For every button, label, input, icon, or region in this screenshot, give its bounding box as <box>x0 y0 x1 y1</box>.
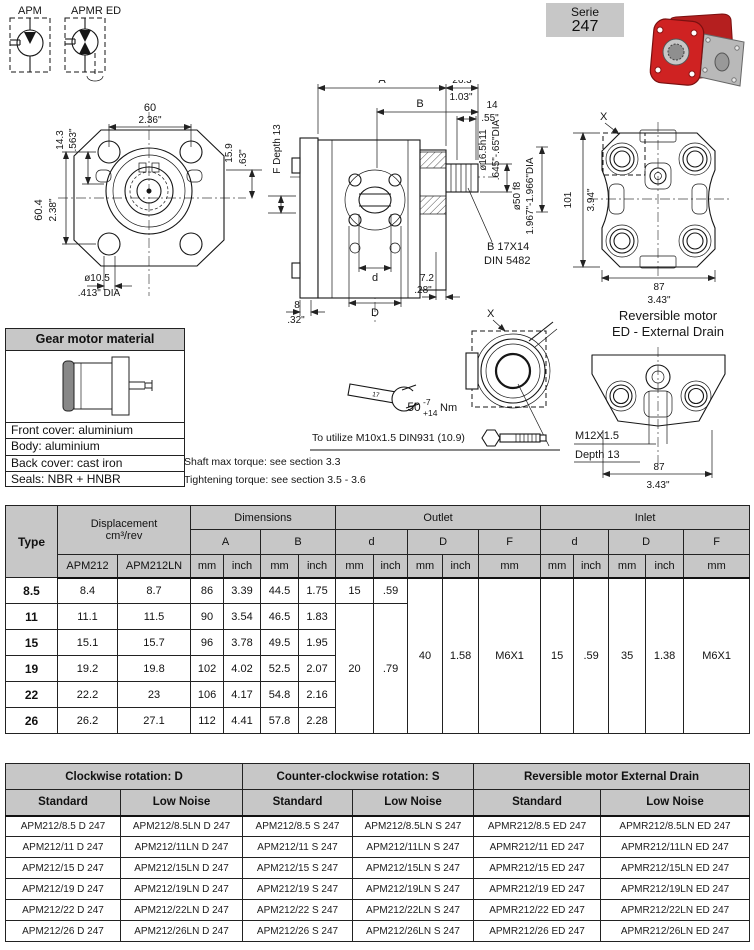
spec-cell: 90 <box>191 604 224 630</box>
bolt-icon <box>482 430 546 446</box>
group-counter-clockwise: Counter-clockwise rotation: S <box>243 764 474 790</box>
apmr-symbol-label: APMR ED <box>71 5 121 17</box>
table-row: APM212/22 D 247 APM212/22LN D 247 APM212… <box>6 900 750 921</box>
dim-plate-mm: 8 <box>294 300 300 311</box>
spec-cell: 26.2 <box>58 708 118 734</box>
col-apm212ln: APM212LN <box>118 555 191 578</box>
dim-key-mm: 15.9 <box>224 143 235 163</box>
col-b: B <box>261 530 336 555</box>
spec-cell: 22.2 <box>58 682 118 708</box>
col-inlet-F: F <box>684 530 750 555</box>
order-code-cell: APM212/15 D 247 <box>6 858 121 879</box>
order-code-cell: APM212/8.5 D 247 <box>6 816 121 837</box>
spec-cell: 11.1 <box>58 604 118 630</box>
dim-a-label: A <box>378 80 386 86</box>
spec-cell: 3.54 <box>224 604 261 630</box>
tightening-torque-note: Tightening torque: see section 3.5 - 3.6 <box>184 474 366 486</box>
col-dimensions: Dimensions <box>191 506 336 530</box>
ed-depth-label: Depth 13 <box>575 449 620 461</box>
order-code-cell: APMR212/19LN ED 247 <box>601 879 750 900</box>
unit-header: inch <box>299 555 336 578</box>
unit-header: inch <box>574 555 609 578</box>
order-code-cell: APMR212/11LN ED 247 <box>601 837 750 858</box>
table-row: APM212/8.5 D 247 APM212/8.5LN D 247 APM2… <box>6 816 750 837</box>
order-code-cell: APM212/22 D 247 <box>6 900 121 921</box>
unit-header: mm <box>261 555 299 578</box>
dim-ed-w-inch: 3.43" <box>646 480 669 491</box>
back-view: X 101 3.94" 87 3.43" Reversible motor ED… <box>563 111 730 339</box>
order-code-cell: APM212/26LN S 247 <box>353 921 474 942</box>
unit-header: mm <box>479 555 541 578</box>
unit-header: mm <box>684 555 750 578</box>
spec-cell: 3.39 <box>224 578 261 604</box>
spec-cell: 4.02 <box>224 656 261 682</box>
spec-cell: 96 <box>191 630 224 656</box>
dim-bv-w-inch: 3.43" <box>647 295 670 306</box>
spec-cell: 35 <box>609 578 646 734</box>
dim-width-inch: 2.36" <box>138 115 161 126</box>
order-code-cell: APMR212/26 ED 247 <box>474 921 601 942</box>
order-code-cell: APMR212/26LN ED 247 <box>601 921 750 942</box>
spec-cell: 2.16 <box>299 682 336 708</box>
order-code-cell: APM212/8.5LN D 247 <box>121 816 243 837</box>
spec-cell: 19.2 <box>58 656 118 682</box>
dim-bv-h-inch: 3.94" <box>586 188 597 211</box>
dim-b-label: B <box>416 98 423 110</box>
order-code-cell: APM212/11LN S 247 <box>353 837 474 858</box>
detail-x-label: X <box>487 308 495 320</box>
dim-key-inch: .63" <box>238 149 249 167</box>
material-row: Seals: NBR + HNBR <box>6 471 184 487</box>
spec-cell: M6X1 <box>479 578 541 734</box>
dim-hole-mm: ø10.5 <box>84 273 110 284</box>
order-code-cell: APM212/8.5 S 247 <box>243 816 353 837</box>
spec-cell: 46.5 <box>261 604 299 630</box>
shaft-torque-note: Shaft max torque: see section 3.3 <box>184 456 341 468</box>
dim-bv-w-mm: 87 <box>653 282 665 293</box>
displacement-unit: cm³/rev <box>58 530 190 542</box>
side-view: A 26.3 1.03" B 14 .55" ø16.5h11 .645"-.6… <box>286 80 548 326</box>
order-code-cell: APM212/11LN D 247 <box>121 837 243 858</box>
spec-cell: 112 <box>191 708 224 734</box>
spec-cell: 1.58 <box>443 578 479 734</box>
dim-d-big: D <box>371 307 379 319</box>
order-code-cell: APMR212/11 ED 247 <box>474 837 601 858</box>
dim-plate-inch: .32" <box>287 315 305 326</box>
spec-cell-type: 19 <box>6 656 58 682</box>
col-outlet-D: D <box>408 530 479 555</box>
ed-thread-label: M12X1.5 <box>575 430 619 442</box>
spec-cell-type: 15 <box>6 630 58 656</box>
spec-cell: 1.75 <box>299 578 336 604</box>
spec-cell-type: 26 <box>6 708 58 734</box>
order-code-cell: APM212/11 S 247 <box>243 837 353 858</box>
spec-cell: 57.8 <box>261 708 299 734</box>
dim-shaftlen-mm: 14 <box>486 100 498 111</box>
spec-cell: .79 <box>374 604 408 734</box>
spline-callout-1: B 17X14 <box>487 241 529 253</box>
unit-header: inch <box>374 555 408 578</box>
order-code-cell: APMR212/22LN ED 247 <box>601 900 750 921</box>
detail-x-view: X <box>466 308 557 446</box>
material-row: Front cover: aluminium <box>6 422 184 438</box>
spec-cell: 102 <box>191 656 224 682</box>
order-code-cell: APM212/26 D 247 <box>6 921 121 942</box>
spec-cell: 27.1 <box>118 708 191 734</box>
order-code-cell: APM212/22LN S 247 <box>353 900 474 921</box>
bolt-note: To utilize M10x1.5 DIN931 (10.9) <box>310 430 560 450</box>
dim-shaft-dia-inch: .645"-.65"DIA <box>491 119 502 180</box>
col-type: Type <box>6 506 58 578</box>
unit-header: mm <box>191 555 224 578</box>
order-code-cell: APM212/15 S 247 <box>243 858 353 879</box>
spec-cell: 2.07 <box>299 656 336 682</box>
apm-symbol-label: APM <box>18 5 42 17</box>
order-code-cell: APM212/26LN D 247 <box>121 921 243 942</box>
torque-tol-minus: -7 <box>423 397 431 407</box>
spec-cell: 106 <box>191 682 224 708</box>
spec-cell: 20 <box>336 604 374 734</box>
order-code-cell: APM212/19 D 247 <box>6 879 121 900</box>
dim-width-mm: 60 <box>144 102 156 114</box>
dim-ed-w-mm: 87 <box>653 462 665 473</box>
serie-badge: Serie 247 <box>546 3 624 37</box>
spec-cell: .59 <box>374 578 408 604</box>
spec-cell-type: 8.5 <box>6 578 58 604</box>
dim-off-inch: .28" <box>414 285 432 296</box>
spec-cell: 44.5 <box>261 578 299 604</box>
spec-cell: 49.5 <box>261 630 299 656</box>
table-row: 8.5 8.4 8.7 86 3.39 44.5 1.75 15 .59 40 … <box>6 578 750 604</box>
dim-len-mm: 26.3 <box>452 80 472 86</box>
order-code-cell: APMR212/8.5 ED 247 <box>474 816 601 837</box>
detail-x-pointer-label: X <box>600 111 608 123</box>
col-displacement: Displacement cm³/rev <box>58 506 191 555</box>
dim-off-mm: 7.2 <box>420 273 434 284</box>
dim-d-small: d <box>372 272 378 284</box>
spec-cell: 40 <box>408 578 443 734</box>
col-inlet-d: d <box>541 530 609 555</box>
spec-cell: 23 <box>118 682 191 708</box>
sub-standard: Standard <box>474 790 601 816</box>
group-clockwise: Clockwise rotation: D <box>6 764 243 790</box>
spec-cell: 8.7 <box>118 578 191 604</box>
order-code-cell: APMR212/15LN ED 247 <box>601 858 750 879</box>
unit-header: mm <box>609 555 646 578</box>
order-code-cell: APM212/19LN S 247 <box>353 879 474 900</box>
spec-cell: 15.7 <box>118 630 191 656</box>
spec-cell: 15 <box>336 578 374 604</box>
serie-number: 247 <box>546 19 624 35</box>
spec-cell-type: 11 <box>6 604 58 630</box>
spec-cell: 4.41 <box>224 708 261 734</box>
spec-cell: 11.5 <box>118 604 191 630</box>
spec-cell: 4.17 <box>224 682 261 708</box>
material-row: Body: aluminium <box>6 438 184 454</box>
sub-standard: Standard <box>6 790 121 816</box>
table-row: APM212/15 D 247 APM212/15LN D 247 APM212… <box>6 858 750 879</box>
spec-cell: 86 <box>191 578 224 604</box>
sub-low-noise: Low Noise <box>601 790 750 816</box>
unit-header: mm <box>408 555 443 578</box>
order-code-cell: APM212/22 S 247 <box>243 900 353 921</box>
material-box-title: Gear motor material <box>6 329 184 351</box>
dim-len-inch: 1.03" <box>449 92 472 103</box>
unit-header: mm <box>541 555 574 578</box>
motor-section-icon <box>6 351 184 422</box>
spec-cell: 15 <box>541 578 574 734</box>
table-row: APM212/11 D 247 APM212/11LN D 247 APM212… <box>6 837 750 858</box>
apmr-symbol-icon <box>65 18 105 81</box>
order-code-cell: APM212/26 S 247 <box>243 921 353 942</box>
sub-low-noise: Low Noise <box>353 790 474 816</box>
dim-pilot-dia-inch: 1.967"-1.966"DIA <box>525 157 536 234</box>
spec-cell: 8.4 <box>58 578 118 604</box>
spec-table: Type Displacement cm³/rev Dimensions Out… <box>5 505 750 734</box>
dim-offset-inch: .563" <box>68 128 79 151</box>
dim-pilot-dia: ø50 f8 <box>512 181 523 210</box>
dim-height-inch: 2.38" <box>48 198 59 221</box>
order-code-cell: APM212/22LN D 247 <box>121 900 243 921</box>
spec-cell: 3.78 <box>224 630 261 656</box>
col-inlet: Inlet <box>541 506 750 530</box>
order-code-cell: APM212/19LN D 247 <box>121 879 243 900</box>
sub-low-noise: Low Noise <box>121 790 243 816</box>
dim-offset-mm: 14.3 <box>55 130 66 150</box>
material-row: Back cover: cast iron <box>6 455 184 471</box>
order-code-cell: APMR212/22 ED 247 <box>474 900 601 921</box>
spec-cell: 15.1 <box>58 630 118 656</box>
torque-wrench-note: 17 50 -7 +14 Nm <box>348 384 457 418</box>
torque-value: 50 <box>407 400 421 414</box>
ed-view: M12X1.5 Depth 13 87 3.43" <box>574 347 725 491</box>
dim-shaft-dia: ø16.5h11 <box>478 129 489 171</box>
dim-bv-h-mm: 101 <box>563 191 574 208</box>
sub-standard: Standard <box>243 790 353 816</box>
unit-header: inch <box>224 555 261 578</box>
group-reversible: Reversible motor External Drain <box>474 764 750 790</box>
spec-cell: 54.8 <box>261 682 299 708</box>
bolt-note-text: To utilize M10x1.5 DIN931 (10.9) <box>312 432 465 444</box>
serie-label: Serie <box>546 3 624 19</box>
order-code-cell: APM212/15LN S 247 <box>353 858 474 879</box>
torque-tol-plus: +14 <box>423 408 438 418</box>
col-outlet-d: d <box>336 530 408 555</box>
spec-cell: 19.8 <box>118 656 191 682</box>
unit-header: mm <box>336 555 374 578</box>
spline-callout-2: DIN 5482 <box>484 255 530 267</box>
dim-f-depth: F Depth 13 <box>272 124 283 174</box>
dim-hole-inch: .413" DIA <box>78 288 121 299</box>
spec-cell: 1.38 <box>646 578 684 734</box>
spec-cell: 1.83 <box>299 604 336 630</box>
spec-cell: 52.5 <box>261 656 299 682</box>
col-inlet-D: D <box>609 530 684 555</box>
hydraulic-symbols: APM APMR ED <box>8 3 128 83</box>
order-code-table: Clockwise rotation: D Counter-clockwise … <box>5 763 750 942</box>
unit-header: inch <box>646 555 684 578</box>
spec-cell: 2.28 <box>299 708 336 734</box>
table-row: APM212/26 D 247 APM212/26LN D 247 APM212… <box>6 921 750 942</box>
front-view: 60 2.36" 14.3 .563" 60.4 2.38" ø10.5 .41… <box>33 102 296 299</box>
back-view-caption-2: ED - External Drain <box>612 324 724 339</box>
apm-symbol-icon <box>10 18 50 72</box>
spec-cell-type: 22 <box>6 682 58 708</box>
back-view-caption-1: Reversible motor <box>619 308 718 323</box>
spec-cell: M6X1 <box>684 578 750 734</box>
table-row: APM212/19 D 247 APM212/19LN D 247 APM212… <box>6 879 750 900</box>
col-outlet-F: F <box>479 530 541 555</box>
order-code-cell: APM212/8.5LN S 247 <box>353 816 474 837</box>
spec-cell: .59 <box>574 578 609 734</box>
displacement-line1: Displacement <box>58 518 190 530</box>
col-apm212: APM212 <box>58 555 118 578</box>
col-outlet: Outlet <box>336 506 541 530</box>
order-code-cell: APM212/19 S 247 <box>243 879 353 900</box>
torque-notes: Shaft max torque: see section 3.3 Tighte… <box>184 456 366 486</box>
order-code-cell: APMR212/8.5LN ED 247 <box>601 816 750 837</box>
torque-unit: Nm <box>440 402 457 414</box>
order-code-cell: APMR212/15 ED 247 <box>474 858 601 879</box>
order-code-cell: APM212/11 D 247 <box>6 837 121 858</box>
col-a: A <box>191 530 261 555</box>
order-code-cell: APMR212/19 ED 247 <box>474 879 601 900</box>
spec-cell: 1.95 <box>299 630 336 656</box>
dim-height-mm: 60.4 <box>33 199 45 220</box>
order-code-cell: APM212/15LN D 247 <box>121 858 243 879</box>
datasheet-page: APM APMR ED Serie 247 <box>0 0 754 950</box>
unit-header: inch <box>443 555 479 578</box>
material-box: Gear motor material Front cover: alumini… <box>5 328 185 487</box>
